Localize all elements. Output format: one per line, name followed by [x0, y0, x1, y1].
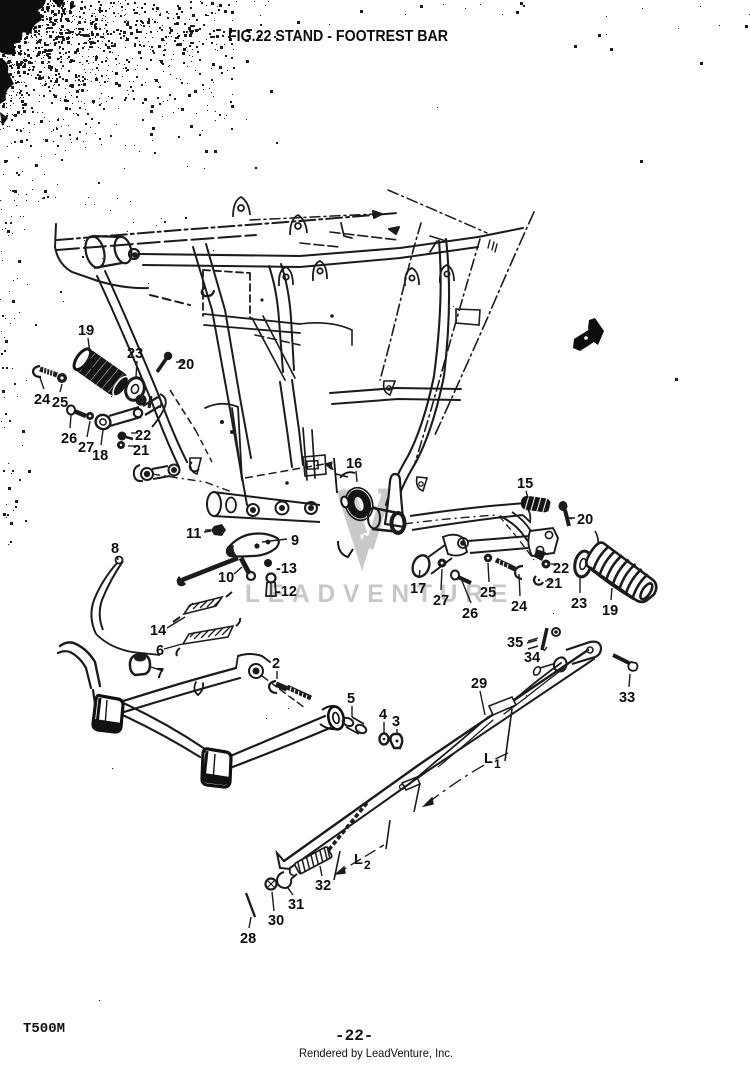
svg-text:11: 11 [186, 526, 201, 542]
svg-text:24: 24 [34, 392, 50, 408]
svg-text:22: 22 [553, 561, 569, 577]
svg-text:8: 8 [111, 541, 119, 557]
svg-text:26: 26 [61, 431, 77, 447]
svg-text:25: 25 [52, 395, 68, 411]
svg-text:34: 34 [524, 650, 540, 666]
svg-text:32: 32 [315, 878, 331, 894]
svg-text:FIG.22 STAND - FOOTREST BAR: FIG.22 STAND - FOOTREST BAR [228, 28, 448, 45]
svg-text:16: 16 [346, 456, 362, 472]
svg-text:19: 19 [602, 603, 618, 619]
svg-text:23: 23 [571, 596, 587, 612]
svg-text:1: 1 [494, 757, 501, 771]
svg-text:14: 14 [150, 623, 166, 639]
svg-text:-12: -12 [276, 584, 297, 600]
svg-text:5: 5 [347, 691, 355, 707]
svg-text:28: 28 [240, 931, 256, 947]
svg-text:18: 18 [92, 448, 108, 464]
svg-text:-22-: -22- [335, 1027, 373, 1045]
svg-text:21: 21 [133, 443, 149, 459]
svg-text:20: 20 [178, 357, 194, 373]
svg-text:T500M: T500M [23, 1021, 65, 1037]
svg-text:25: 25 [480, 585, 496, 601]
svg-text:19: 19 [78, 323, 94, 339]
svg-text:9: 9 [291, 533, 299, 549]
svg-text:15: 15 [517, 476, 533, 492]
svg-text:6: 6 [156, 643, 164, 659]
svg-text:27: 27 [433, 593, 449, 609]
svg-text:Rendered by LeadVenture, Inc.: Rendered by LeadVenture, Inc. [299, 1046, 453, 1060]
svg-text:3: 3 [392, 714, 400, 730]
svg-text:L: L [484, 751, 493, 767]
svg-text:22: 22 [135, 428, 151, 444]
svg-text:10: 10 [218, 570, 234, 586]
svg-text:30: 30 [268, 913, 284, 929]
svg-text:17: 17 [410, 581, 426, 597]
svg-text:4: 4 [379, 707, 387, 723]
svg-text:-13: -13 [276, 561, 297, 577]
svg-text:L: L [354, 852, 363, 868]
svg-text:33: 33 [619, 690, 635, 706]
svg-text:2: 2 [272, 656, 280, 672]
svg-text:20: 20 [577, 512, 593, 528]
svg-text:29: 29 [471, 676, 487, 692]
svg-text:2: 2 [364, 858, 371, 872]
svg-text:31: 31 [288, 897, 304, 913]
svg-text:23: 23 [127, 346, 143, 362]
svg-text:35: 35 [507, 635, 523, 651]
svg-text:21: 21 [546, 576, 562, 592]
svg-text:24: 24 [511, 599, 527, 615]
svg-text:26: 26 [462, 606, 478, 622]
